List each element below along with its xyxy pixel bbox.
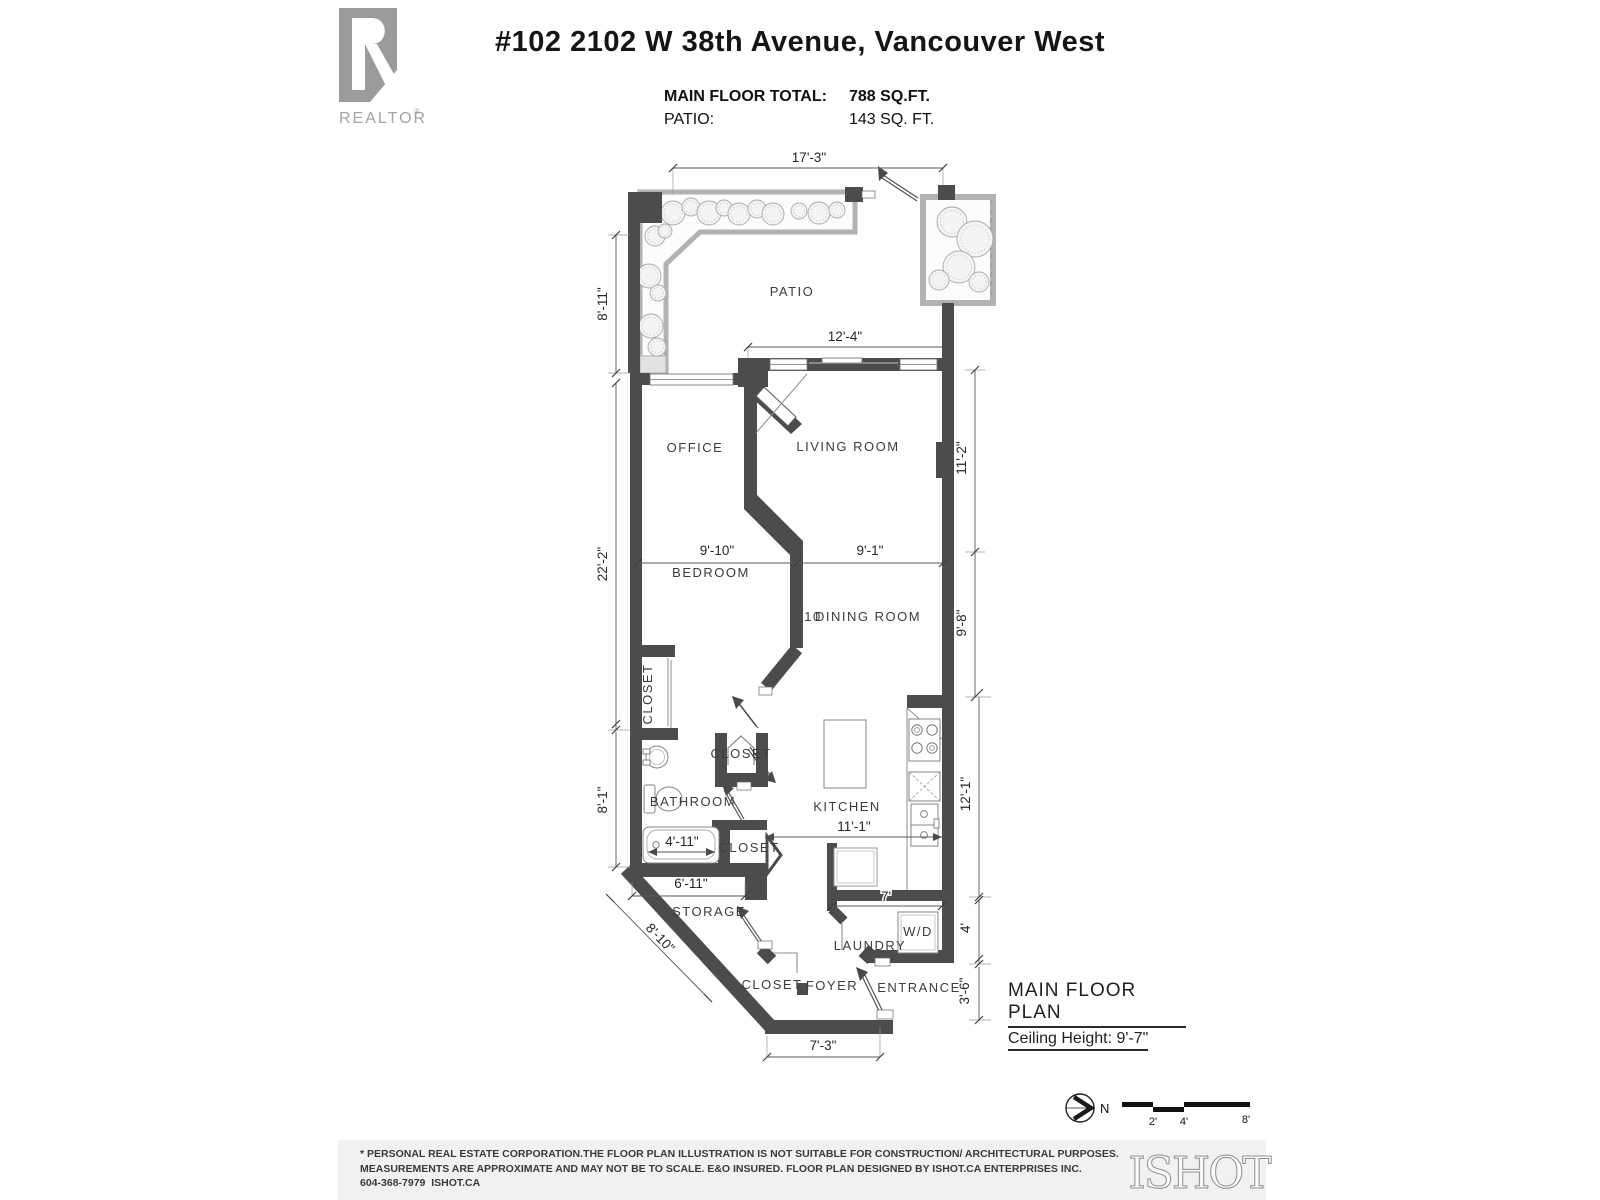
realtor-logo: REALTOR ® [338, 6, 428, 132]
ishot-logo: ISHOT [1125, 1146, 1275, 1200]
windows [650, 358, 937, 385]
compass-and-scale: N 2' 4' 8' [1030, 1082, 1270, 1140]
kitchen-island [824, 720, 866, 788]
dim-11-1: 11'-1" [837, 819, 871, 834]
room-label-kitchen: KITCHEN [813, 799, 881, 814]
wd-label: W/D [903, 924, 933, 939]
dim-8-11: 8'-11" [595, 287, 610, 321]
dim-8-1: 8'-1" [595, 786, 610, 813]
room-label-closet-bedroom: CLOSET [640, 663, 655, 724]
dim-12-1: 12'-1" [958, 777, 973, 812]
room-label-living: LIVING ROOM [796, 439, 899, 454]
floor-plan-page: REALTOR ® #102 2102 W 38th Avenue, Vanco… [0, 0, 1600, 1200]
room-label-closet-foyer: CLOSET [741, 977, 802, 992]
dishwasher-icon [909, 772, 940, 801]
dim-9-10: 9'-10" [700, 543, 735, 558]
patio-gate-door [862, 166, 918, 201]
room-label-storage: STORAGE [672, 904, 746, 919]
foyer-closet-front [773, 922, 842, 973]
patio-area-label: PATIO: [664, 111, 854, 129]
dim-9-8: 9'-8" [954, 609, 969, 636]
north-arrow-icon: N [1065, 1094, 1109, 1122]
room-label-dining: DINING ROOM [815, 609, 921, 624]
dim-9-1: 9'-1" [857, 543, 884, 558]
room-label-bathroom: BATHROOM [650, 794, 736, 809]
scale-8ft: 8' [1242, 1114, 1250, 1126]
room-label-closet-mid: CLOSET [710, 746, 771, 761]
scale-2ft: 2' [1149, 1116, 1157, 1128]
room-label-entrance: ENTRANCE [877, 980, 961, 995]
fridge-icon [834, 848, 877, 886]
dim-4: 4' [958, 923, 973, 933]
bathroom-sink-icon [643, 746, 668, 768]
room-label-closet-bath: CLOSET [718, 840, 779, 855]
plan-title: MAIN FLOOR PLAN [1008, 980, 1186, 1028]
stove-icon [909, 719, 940, 761]
ishot-logo-text: ISHOT [1128, 1148, 1271, 1199]
dim-17-3: 17'-3" [792, 150, 827, 165]
bedroom-door [732, 687, 772, 728]
disclaimer-text: * PERSONAL REAL ESTATE CORPORATION.THE F… [360, 1147, 1119, 1191]
dim-11-2: 11'-2" [954, 441, 969, 475]
scale-bar: 2' 4' 8' [1122, 1102, 1250, 1128]
bedroom-closet-slider [668, 658, 671, 728]
dim-4-11: 4'-11" [665, 834, 699, 849]
room-label-office: OFFICE [667, 440, 724, 455]
dim-12-4: 12'-4" [828, 329, 863, 344]
dim-6-11: 6'-11" [674, 876, 708, 891]
floor-plan-drawing: W/D [560, 140, 1020, 1080]
realtor-registered-icon: ® [414, 107, 420, 116]
room-label-foyer: FOYER [806, 978, 858, 993]
ceiling-height: Ceiling Height: 9'-7" [1008, 1030, 1148, 1051]
patio-area-value: 143 SQ. FT. [849, 111, 1049, 129]
plan-title-block: MAIN FLOOR PLAN Ceiling Height: 9'-7" [1008, 980, 1186, 1051]
page-title: #102 2102 W 38th Avenue, Vancouver West [0, 26, 1600, 59]
dim-7: 7' [881, 889, 891, 904]
main-floor-total-value: 788 SQ.FT. [849, 88, 1049, 106]
main-floor-total-label: MAIN FLOOR TOTAL: [664, 88, 854, 106]
dim-22-2: 22'-2" [595, 547, 610, 582]
north-label: N [1100, 1101, 1109, 1116]
room-label-patio: PATIO [770, 284, 815, 299]
room-label-laundry: LAUNDRY [834, 938, 906, 953]
room-label-bedroom: BEDROOM [672, 565, 750, 580]
scale-4ft: 4' [1180, 1116, 1188, 1128]
dim-7-3: 7'-3" [810, 1038, 837, 1053]
